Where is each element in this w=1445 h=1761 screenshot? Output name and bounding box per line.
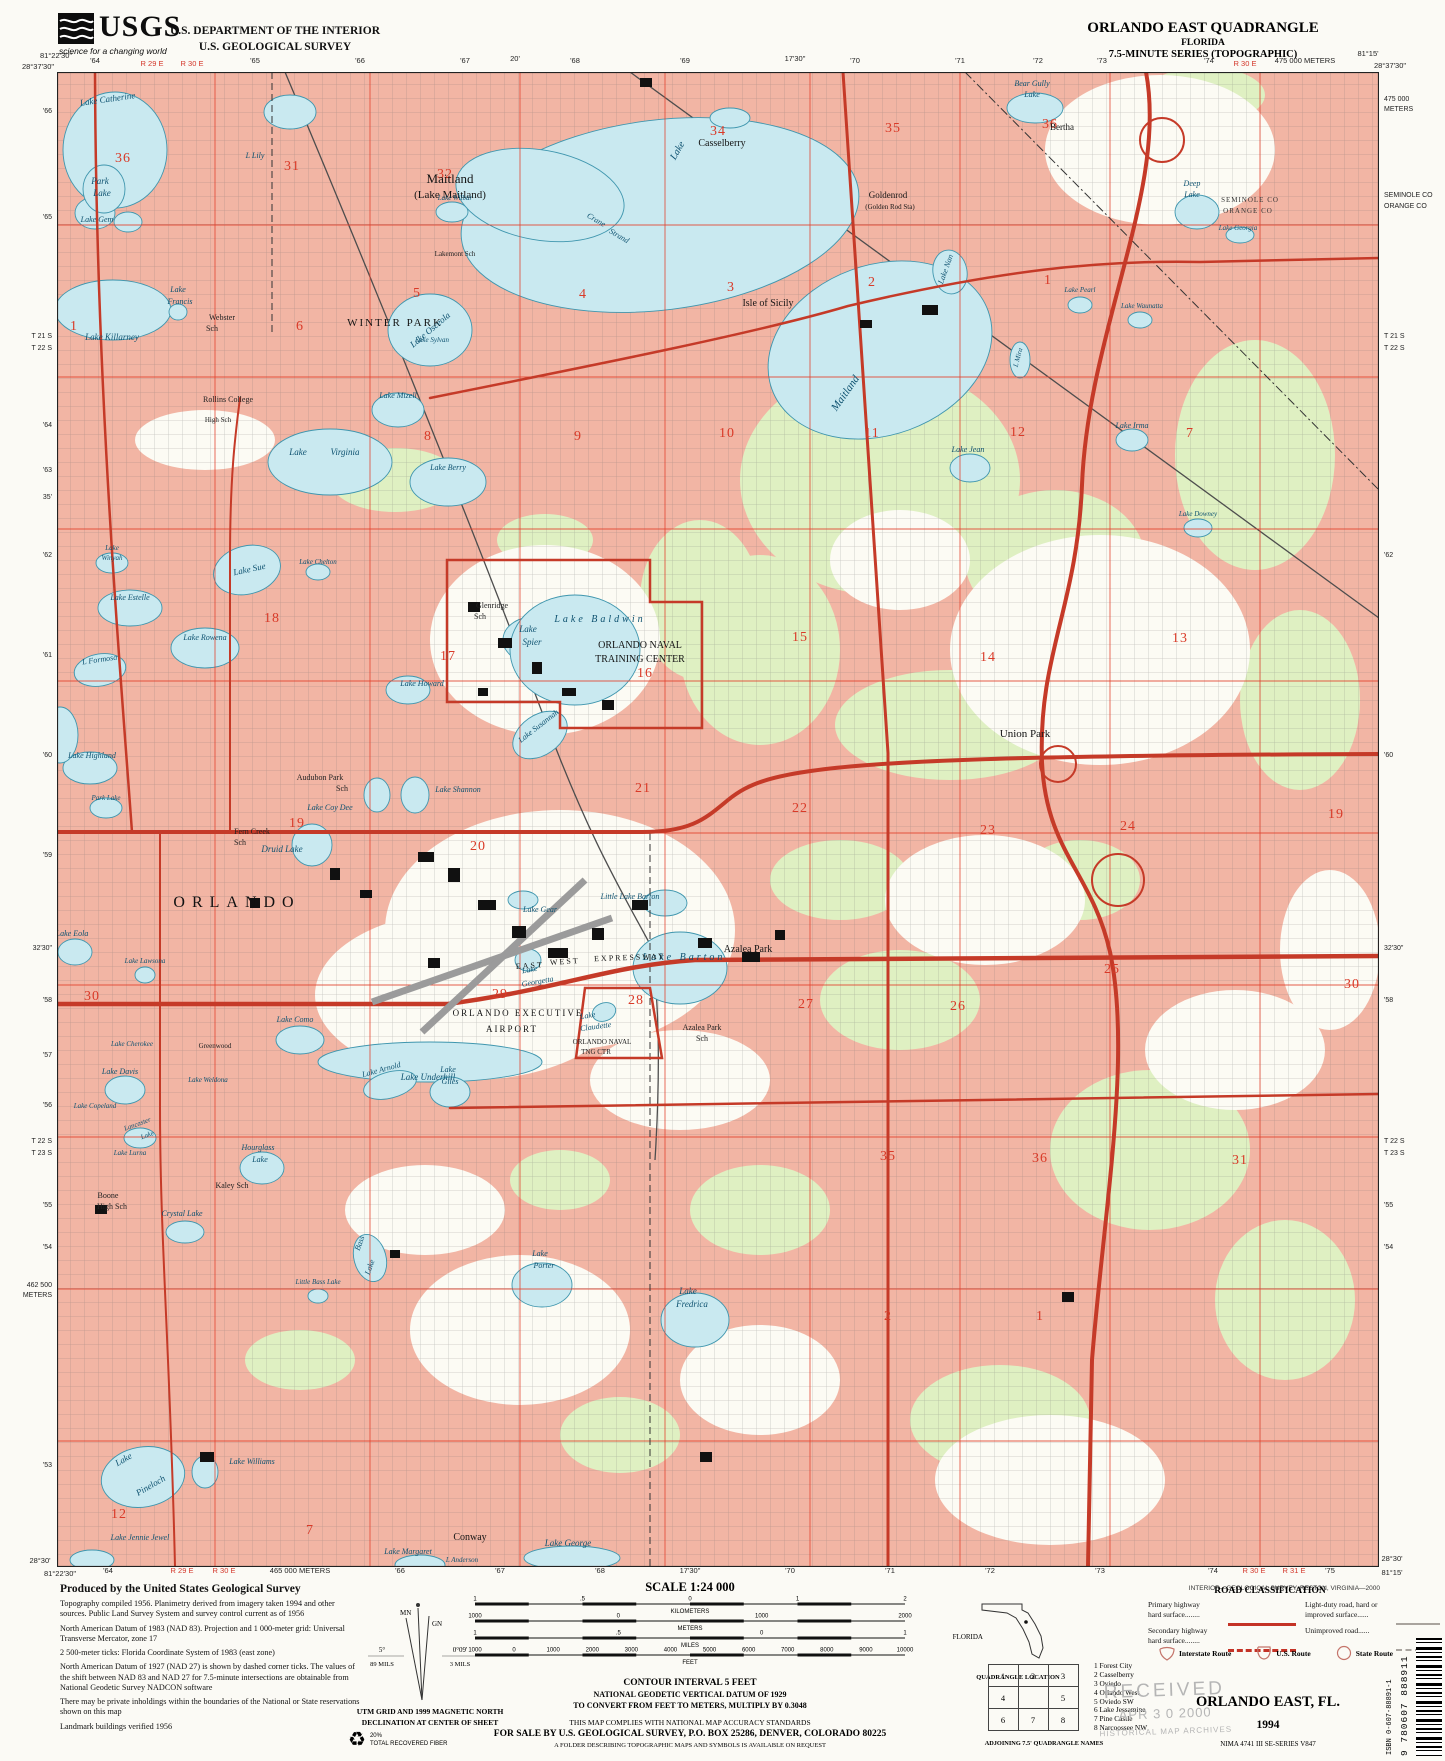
edge-label: T 22 S: [1384, 1138, 1443, 1145]
legend-row-label: Unimproved road......: [1305, 1626, 1369, 1636]
svg-text:L Anderson: L Anderson: [445, 1556, 479, 1564]
edge-label: '68: [570, 56, 580, 65]
quadrangle-title: ORLANDO EAST QUADRANGLE FLORIDA 7.5-MINU…: [1027, 20, 1379, 60]
svg-text:Casselberry: Casselberry: [698, 138, 745, 149]
svg-text:12: 12: [111, 1507, 127, 1522]
edge-label: '67: [495, 1566, 505, 1575]
svg-text:Lake Gem: Lake Gem: [80, 215, 114, 224]
edge-label: '68: [595, 1566, 605, 1575]
barcode-number: 9 780607 888911: [1399, 1638, 1410, 1756]
svg-text:Lake: Lake: [251, 1155, 268, 1164]
svg-text:Francis: Francis: [167, 297, 193, 306]
svg-text:Lake: Lake: [169, 285, 186, 294]
edge-label: '65: [2, 214, 52, 221]
received-stamp: RECEIVED APR 3 0 2000 HISTORICAL MAP ARC…: [1089, 1677, 1241, 1738]
edge-label: 81°22'30": [44, 1569, 76, 1578]
svg-text:30: 30: [1344, 977, 1360, 992]
usgs-logo-icon: [58, 13, 94, 44]
svg-text:TNG CTR: TNG CTR: [581, 1048, 611, 1056]
legend-line-sample: [1228, 1623, 1296, 1626]
production-note: Topography compiled 1956. Planimetry der…: [60, 1599, 362, 1620]
edge-label: '62: [2, 552, 52, 559]
svg-text:Lakemont Sch: Lakemont Sch: [435, 250, 476, 258]
svg-text:MILES: MILES: [681, 1643, 699, 1649]
svg-text:Lake Lurna: Lake Lurna: [113, 1149, 147, 1157]
svg-text:Crystal Lake: Crystal Lake: [161, 1209, 203, 1218]
svg-text:TRAINING CENTER: TRAINING CENTER: [595, 654, 685, 665]
svg-text:36: 36: [1032, 1151, 1048, 1166]
svg-text:Sch: Sch: [234, 838, 246, 847]
svg-text:Lake Williams: Lake Williams: [228, 1457, 275, 1466]
svg-text:24: 24: [1120, 819, 1136, 834]
edge-label: '54: [2, 1244, 52, 1251]
edge-label: 28°30': [1381, 1554, 1402, 1563]
agency-heading: U.S. DEPARTMENT OF THE INTERIOR U.S. GEO…: [165, 24, 385, 55]
svg-text:0: 0: [760, 1631, 764, 1637]
edge-label: 475 000 METERS: [1275, 56, 1335, 65]
svg-text:Little Bass Lake: Little Bass Lake: [294, 1278, 340, 1286]
svg-text:25: 25: [1104, 962, 1120, 977]
svg-text:Lake Killarney: Lake Killarney: [84, 332, 139, 342]
svg-text:Lake: Lake: [439, 1065, 456, 1074]
svg-text:Lake Estelle: Lake Estelle: [109, 593, 150, 602]
edge-label: '60: [1384, 752, 1443, 759]
svg-text:Deep: Deep: [1183, 179, 1201, 188]
svg-text:Porter: Porter: [533, 1261, 556, 1270]
svg-text:1: 1: [1036, 1309, 1044, 1324]
svg-text:6000: 6000: [742, 1648, 756, 1654]
svg-text:Lake Howard: Lake Howard: [399, 679, 444, 688]
interstate-shield: Interstate Route: [1158, 1645, 1231, 1661]
svg-text:Kaley Sch: Kaley Sch: [215, 1181, 248, 1190]
edge-label: 81°15': [1357, 49, 1378, 58]
edge-label: T 22 S: [2, 345, 52, 352]
svg-text:11: 11: [864, 426, 879, 441]
svg-text:FEET: FEET: [682, 1660, 698, 1666]
svg-text:Hourglass: Hourglass: [240, 1143, 274, 1152]
svg-text:.5: .5: [580, 1597, 586, 1603]
mn-degrees: 5°: [379, 1646, 386, 1654]
scale-bars: 1.5012KILOMETERS1000010002000METERS1.501…: [455, 1594, 925, 1672]
svg-text:Union Park: Union Park: [1000, 728, 1051, 740]
svg-text:Virginia: Virginia: [331, 447, 360, 457]
svg-text:3: 3: [727, 280, 735, 295]
quad-cell: 1: [988, 1664, 1019, 1687]
svg-text:Lake Pearl: Lake Pearl: [1064, 286, 1096, 294]
adjoining-quad-caption: ADJOINING 7.5' QUADRANGLE NAMES: [955, 1740, 1133, 1747]
svg-text:Lake Cherokee: Lake Cherokee: [110, 1040, 153, 1048]
svg-text:1000: 1000: [547, 1648, 561, 1654]
svg-text:2: 2: [903, 1597, 907, 1603]
svg-text:Lake Gear: Lake Gear: [522, 905, 558, 914]
svg-text:Lake Sylvan: Lake Sylvan: [414, 336, 450, 344]
svg-text:36: 36: [115, 151, 131, 166]
svg-text:17: 17: [440, 649, 456, 664]
quad-cell: 8: [1048, 1708, 1079, 1731]
svg-text:Park: Park: [90, 176, 110, 186]
state-shield: State Route: [1335, 1645, 1393, 1661]
svg-text:2: 2: [884, 1309, 892, 1324]
edge-label: '64: [2, 422, 52, 429]
edge-label: METERS: [2, 1292, 52, 1299]
svg-text:9000: 9000: [859, 1648, 873, 1654]
svg-text:Lake Downey: Lake Downey: [1178, 510, 1218, 518]
svg-text:1: 1: [1044, 273, 1052, 288]
svg-text:Little Lake Barton: Little Lake Barton: [600, 892, 660, 901]
edge-label: R 30 E: [181, 59, 204, 68]
svg-text:Sch: Sch: [336, 784, 348, 793]
edge-label: '73: [1095, 1566, 1105, 1575]
svg-text:ORLANDO: ORLANDO: [173, 894, 300, 911]
quad-state: FLORIDA: [1027, 38, 1379, 48]
svg-text:Lake Baldwin: Lake Baldwin: [553, 614, 645, 625]
svg-text:Lake Weldona: Lake Weldona: [187, 1076, 228, 1084]
svg-text:KILOMETERS: KILOMETERS: [671, 1609, 710, 1615]
edge-label: 32'30": [2, 945, 52, 952]
edge-label: '64: [103, 1566, 113, 1575]
svg-text:1: 1: [473, 1597, 477, 1603]
svg-text:Glenridge: Glenridge: [476, 601, 508, 610]
gn-label: GN: [432, 1620, 442, 1628]
adjoining-quad-grid: 12345678: [988, 1664, 1078, 1730]
isbn-text: ISBN 0-607-88891-1: [1386, 1640, 1394, 1755]
edge-label: R 31 E: [1283, 1566, 1306, 1575]
svg-text:9: 9: [574, 429, 582, 444]
edge-label: '53: [2, 1462, 52, 1469]
svg-text:Lake: Lake: [288, 447, 307, 457]
svg-text:Greenwood: Greenwood: [199, 1042, 232, 1050]
svg-text:5: 5: [413, 286, 421, 301]
edge-label: 28°37'30": [1374, 61, 1406, 70]
svg-text:SEMINOLE CO: SEMINOLE CO: [1221, 196, 1279, 204]
edge-label: 28°37'30": [22, 62, 54, 71]
svg-text:29: 29: [492, 987, 508, 1002]
edge-label: '55: [1384, 1202, 1443, 1209]
quad-cell: 4: [988, 1686, 1019, 1709]
svg-text:.5: .5: [616, 1631, 622, 1637]
edge-label: 81°22'30": [40, 51, 72, 60]
production-title: Produced by the United States Geological…: [60, 1583, 362, 1595]
svg-text:1: 1: [473, 1631, 477, 1637]
svg-text:10000: 10000: [897, 1648, 914, 1654]
edge-label: R 30 E: [1234, 59, 1257, 68]
svg-text:34: 34: [710, 124, 726, 139]
edge-label: '63: [2, 467, 52, 474]
svg-text:30: 30: [84, 989, 100, 1004]
edge-label: '67: [460, 56, 470, 65]
mn-label: MN: [400, 1609, 411, 1617]
edge-label: '73: [1097, 56, 1107, 65]
svg-text:Lake Rowena: Lake Rowena: [182, 633, 226, 642]
road-classification-title: ROAD CLASSIFICATION: [1150, 1586, 1390, 1596]
svg-text:1: 1: [796, 1597, 800, 1603]
svg-text:Winyah: Winyah: [102, 554, 123, 562]
svg-text:L Lily: L Lily: [245, 151, 265, 160]
quad-cell: [1018, 1686, 1049, 1709]
svg-text:0: 0: [688, 1597, 692, 1603]
svg-text:ORLANDO NAVAL: ORLANDO NAVAL: [573, 1038, 632, 1046]
quad-cell: 6: [988, 1708, 1019, 1731]
sales-note: THIS MAP COMPLIES WITH NATIONAL MAP ACCU…: [420, 1718, 960, 1749]
svg-text:6: 6: [296, 319, 304, 334]
contour-note: CONTOUR INTERVAL 5 FEET NATIONAL GEODETI…: [460, 1678, 920, 1710]
svg-text:Bertha: Bertha: [1050, 122, 1074, 132]
svg-text:18: 18: [264, 611, 280, 626]
edge-label: T 23 S: [1384, 1150, 1443, 1157]
svg-text:Lake Jean: Lake Jean: [951, 445, 985, 454]
svg-text:Bear Gully: Bear Gully: [1014, 79, 1050, 88]
map-sheet: USGS science for a changing world U.S. D…: [0, 0, 1445, 1761]
route-shields: Interstate RouteU.S. RouteState Route: [1158, 1645, 1393, 1661]
mn-mils: 89 MILS: [370, 1661, 394, 1668]
svg-text:35: 35: [880, 1149, 896, 1164]
usgs-tagline: science for a changing world: [59, 46, 167, 56]
edge-label: T 22 S: [1384, 345, 1443, 352]
svg-text:31: 31: [284, 159, 300, 174]
svg-text:Webster: Webster: [209, 313, 235, 322]
svg-text:Lake Waunatta: Lake Waunatta: [1120, 302, 1163, 310]
svg-text:8000: 8000: [820, 1648, 834, 1654]
edge-label: '71: [955, 56, 965, 65]
svg-text:1000: 1000: [468, 1648, 482, 1654]
svg-text:4: 4: [579, 287, 587, 302]
svg-text:High Sch: High Sch: [205, 416, 232, 424]
svg-text:Lake: Lake: [104, 544, 119, 552]
quad-cell: 7: [1018, 1708, 1049, 1731]
edge-label: R 30 E: [213, 1566, 236, 1575]
legend-row-label: Light-duty road, hard orimproved surface…: [1305, 1600, 1377, 1620]
edge-label: 35': [2, 494, 52, 501]
svg-text:28: 28: [628, 993, 644, 1008]
svg-text:1000: 1000: [755, 1614, 769, 1620]
quad-location-dot: [1024, 1620, 1028, 1624]
svg-text:Sch: Sch: [206, 324, 218, 333]
svg-text:7000: 7000: [781, 1648, 795, 1654]
svg-text:Lake: Lake: [531, 1249, 548, 1258]
edge-label: ORANGE CO: [1384, 203, 1443, 210]
svg-text:2: 2: [868, 275, 876, 290]
svg-text:Spier: Spier: [523, 637, 542, 647]
legend-row-label: Primary highwayhard surface........: [1148, 1600, 1200, 1620]
edge-label: R 29 E: [171, 1566, 194, 1575]
legend-row-label: Secondary highwayhard surface........: [1148, 1626, 1207, 1646]
svg-text:Sch: Sch: [474, 612, 486, 621]
svg-text:Lake Margaret: Lake Margaret: [383, 1547, 432, 1556]
svg-text:Lake Davis: Lake Davis: [101, 1067, 138, 1076]
edge-label: R 30 E: [1243, 1566, 1266, 1575]
svg-text:31: 31: [1232, 1153, 1248, 1168]
svg-text:ORLANDO EXECUTIVE: ORLANDO EXECUTIVE: [453, 1008, 584, 1018]
edge-label: 32'30": [1384, 945, 1443, 952]
edge-label: 17'30": [680, 1566, 701, 1575]
edge-label: '56: [2, 1102, 52, 1109]
svg-text:ORLANDO NAVAL: ORLANDO NAVAL: [598, 640, 682, 651]
svg-text:1: 1: [70, 319, 78, 334]
state-label: FLORIDA: [928, 1633, 983, 1641]
svg-text:Lake Copeland: Lake Copeland: [73, 1102, 117, 1110]
edge-label: '55: [2, 1202, 52, 1209]
svg-text:Druid Lake: Druid Lake: [260, 844, 302, 854]
svg-text:19: 19: [1328, 807, 1344, 822]
edge-label: '70: [785, 1566, 795, 1575]
svg-text:Lake George: Lake George: [544, 1538, 591, 1548]
svg-text:Lake Wilbar: Lake Wilbar: [437, 194, 473, 202]
svg-text:Giles: Giles: [442, 1077, 459, 1086]
svg-text:7: 7: [306, 1523, 314, 1538]
edge-label: '72: [1033, 56, 1043, 65]
edge-label: 462 500: [2, 1282, 52, 1289]
edge-label: '72: [985, 1566, 995, 1575]
svg-text:Lake Irma: Lake Irma: [1114, 421, 1148, 430]
edge-label: 20': [510, 54, 520, 63]
edge-label: '74: [1204, 56, 1214, 65]
svg-text:Lake: Lake: [518, 624, 537, 634]
svg-text:16: 16: [637, 666, 653, 681]
svg-text:Azalea Park: Azalea Park: [683, 1023, 722, 1032]
svg-text:Lake: Lake: [678, 1286, 697, 1296]
edge-label: T 21 S: [2, 333, 52, 340]
svg-text:METERS: METERS: [677, 1626, 702, 1632]
production-note: 2 500-meter ticks: Florida Coordinate Sy…: [60, 1648, 362, 1658]
svg-text:Lake Como: Lake Como: [276, 1015, 314, 1024]
svg-text:Lake Highland: Lake Highland: [67, 751, 117, 760]
svg-text:3000: 3000: [625, 1648, 639, 1654]
svg-text:Fern Creek: Fern Creek: [234, 827, 270, 836]
svg-text:10: 10: [719, 426, 735, 441]
svg-text:Lake: Lake: [1183, 190, 1200, 199]
svg-text:19: 19: [289, 816, 305, 831]
edge-label: '58: [2, 997, 52, 1004]
edge-label: '57: [2, 1052, 52, 1059]
svg-text:13: 13: [1172, 631, 1188, 646]
edge-label: 28°30': [29, 1556, 50, 1565]
edge-label: METERS: [1384, 106, 1443, 113]
svg-text:27: 27: [798, 997, 814, 1012]
svg-text:0: 0: [617, 1614, 621, 1620]
edge-label: T 21 S: [1384, 333, 1443, 340]
svg-text:ORANGE CO: ORANGE CO: [1223, 207, 1273, 215]
svg-text:12: 12: [1010, 425, 1026, 440]
svg-text:Park Lake: Park Lake: [91, 794, 121, 802]
svg-text:7: 7: [1186, 426, 1194, 441]
edge-label: '64: [90, 56, 100, 65]
edge-label: 17'30": [785, 54, 806, 63]
svg-text:4000: 4000: [664, 1648, 678, 1654]
map-series-code: NIMA 4741 III SE-SERIES V847: [1178, 1740, 1358, 1748]
edge-label: '66: [2, 108, 52, 115]
svg-text:Rollins College: Rollins College: [203, 395, 253, 404]
svg-text:Sch: Sch: [696, 1034, 708, 1043]
edge-label: 475 000: [1384, 96, 1443, 103]
svg-text:(Golden Rod Sta): (Golden Rod Sta): [865, 203, 915, 211]
edge-label: '61: [2, 652, 52, 659]
svg-text:Lake: Lake: [92, 188, 111, 198]
svg-text:Maitland: Maitland: [427, 171, 474, 186]
edge-label: '54: [1384, 1244, 1443, 1251]
svg-text:0: 0: [512, 1648, 516, 1654]
svg-text:Lake Mizell: Lake Mizell: [378, 391, 417, 400]
edge-label: '65: [250, 56, 260, 65]
florida-outline: [978, 1596, 1063, 1671]
edge-label: '74: [1208, 1566, 1218, 1575]
svg-text:1: 1: [903, 1631, 907, 1637]
svg-text:Boone: Boone: [98, 1191, 119, 1200]
svg-text:21: 21: [635, 781, 651, 796]
production-note: North American Datum of 1983 (NAD 83). P…: [60, 1624, 362, 1645]
svg-text:Goldenrod: Goldenrod: [869, 190, 908, 200]
svg-text:Lake Eola: Lake Eola: [57, 929, 88, 938]
edge-label: '62: [1384, 552, 1443, 559]
svg-text:2000: 2000: [586, 1648, 600, 1654]
us-shield: U.S. Route: [1255, 1645, 1310, 1661]
edge-label: '66: [395, 1566, 405, 1575]
svg-text:1000: 1000: [468, 1614, 482, 1620]
svg-text:2000: 2000: [898, 1614, 912, 1620]
svg-text:Lake Chelton: Lake Chelton: [298, 558, 337, 566]
svg-text:5000: 5000: [703, 1648, 717, 1654]
svg-text:Audubon Park: Audubon Park: [297, 773, 343, 782]
svg-text:Lake Jennie Jewel: Lake Jennie Jewel: [110, 1533, 170, 1542]
svg-text:High Sch: High Sch: [97, 1202, 127, 1211]
svg-text:26: 26: [950, 999, 966, 1014]
production-note: North American Datum of 1927 (NAD 27) is…: [60, 1662, 362, 1693]
edge-label: 465 000 METERS: [270, 1566, 330, 1575]
edge-label: '66: [355, 56, 365, 65]
barcode: [1416, 1638, 1442, 1756]
quad-name: ORLANDO EAST QUADRANGLE: [1027, 20, 1379, 37]
map-canvas: 3631323435361654321891011127181716151413…: [57, 72, 1379, 1567]
svg-text:8: 8: [424, 429, 432, 444]
svg-text:23: 23: [980, 823, 996, 838]
edge-label: T 22 S: [2, 1138, 52, 1145]
edge-label: '60: [2, 752, 52, 759]
edge-label: '58: [1384, 997, 1443, 1004]
quad-cell: 3: [1048, 1664, 1079, 1687]
svg-text:20: 20: [470, 839, 486, 854]
quad-cell: 5: [1048, 1686, 1079, 1709]
svg-text:Azalea Park: Azalea Park: [724, 944, 773, 955]
edge-label: '69: [680, 56, 690, 65]
svg-text:Isle of Sicily: Isle of Sicily: [742, 298, 793, 309]
edge-label: '70: [850, 56, 860, 65]
svg-text:Lake Berry: Lake Berry: [429, 463, 466, 472]
svg-text:35: 35: [885, 121, 901, 136]
edge-label: T 23 S: [2, 1150, 52, 1157]
svg-text:Lake Lawsona: Lake Lawsona: [124, 957, 166, 965]
edge-label: R 29 E: [141, 59, 164, 68]
svg-text:Conway: Conway: [453, 1532, 486, 1543]
svg-text:14: 14: [980, 650, 996, 665]
svg-text:Lake Shannon: Lake Shannon: [434, 785, 481, 794]
recycle-icon: ♻: [348, 1730, 366, 1750]
edge-label: '59: [2, 852, 52, 859]
svg-text:Lake: Lake: [1023, 90, 1040, 99]
dept-line2: U.S. GEOLOGICAL SURVEY: [165, 40, 385, 56]
dept-line1: U.S. DEPARTMENT OF THE INTERIOR: [165, 24, 385, 40]
svg-text:AIRPORT: AIRPORT: [486, 1024, 538, 1034]
edge-label: '75: [1325, 1566, 1335, 1575]
quad-cell: 2: [1018, 1664, 1049, 1687]
svg-text:Fredrica: Fredrica: [675, 1299, 708, 1309]
edge-label: SEMINOLE CO: [1384, 192, 1443, 199]
svg-text:Lake Georgia: Lake Georgia: [1218, 224, 1258, 232]
scale-title: SCALE 1:24 000: [540, 1580, 840, 1595]
edge-label: 81°15': [1381, 1568, 1402, 1577]
svg-text:Lake Coy Dee: Lake Coy Dee: [306, 803, 353, 812]
svg-text:15: 15: [792, 630, 808, 645]
edge-label: '71: [885, 1566, 895, 1575]
legend-line-sample: [1396, 1623, 1440, 1625]
